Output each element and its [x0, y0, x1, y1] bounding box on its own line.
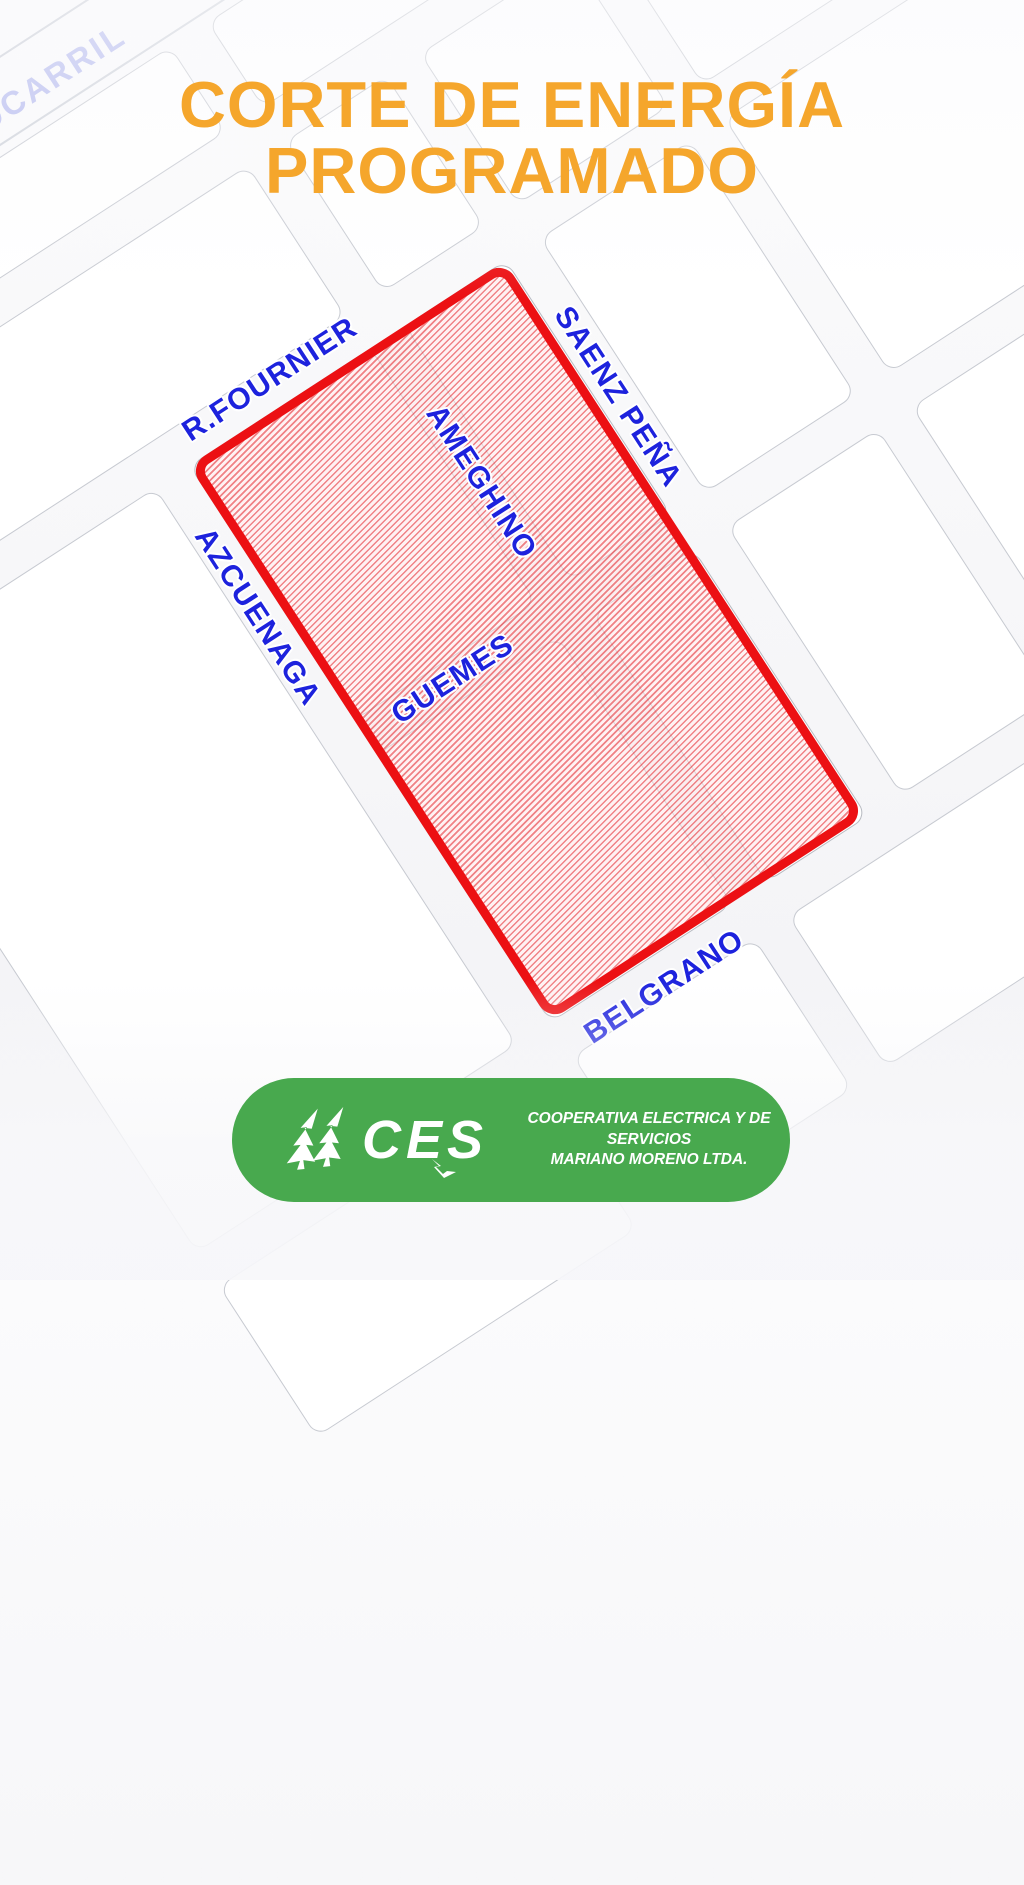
pine-bolt-trees-icon [280, 1107, 356, 1173]
cooperative-name-line-1: COOPERATIVA ELECTRICA Y DE SERVICIOS [508, 1109, 790, 1151]
cooperative-badge: CES COOPERATIVA ELECTRICA Y DE SERVICIOS… [232, 1078, 790, 1202]
page-title: CORTE DE ENERGÍA PROGRAMADO [0, 72, 1024, 203]
title-line-2: PROGRAMADO [0, 138, 1024, 204]
cooperative-name-line-2: MARIANO MORENO LTDA. [508, 1150, 790, 1171]
title-line-1: CORTE DE ENERGÍA [0, 72, 1024, 138]
logo-acronym-text: CES [362, 1113, 488, 1167]
ces-logo: CES [280, 1107, 488, 1173]
street-map: OCARRIL R.FOURNIER SAENZ PEÑA AMEGHINO A… [0, 0, 1024, 1885]
outage-poster: { "poster": { "title_line1": "CORTE DE E… [0, 0, 1024, 1280]
lightning-bolt-icon [430, 1159, 456, 1183]
cooperative-name: COOPERATIVA ELECTRICA Y DE SERVICIOS MAR… [508, 1109, 790, 1172]
